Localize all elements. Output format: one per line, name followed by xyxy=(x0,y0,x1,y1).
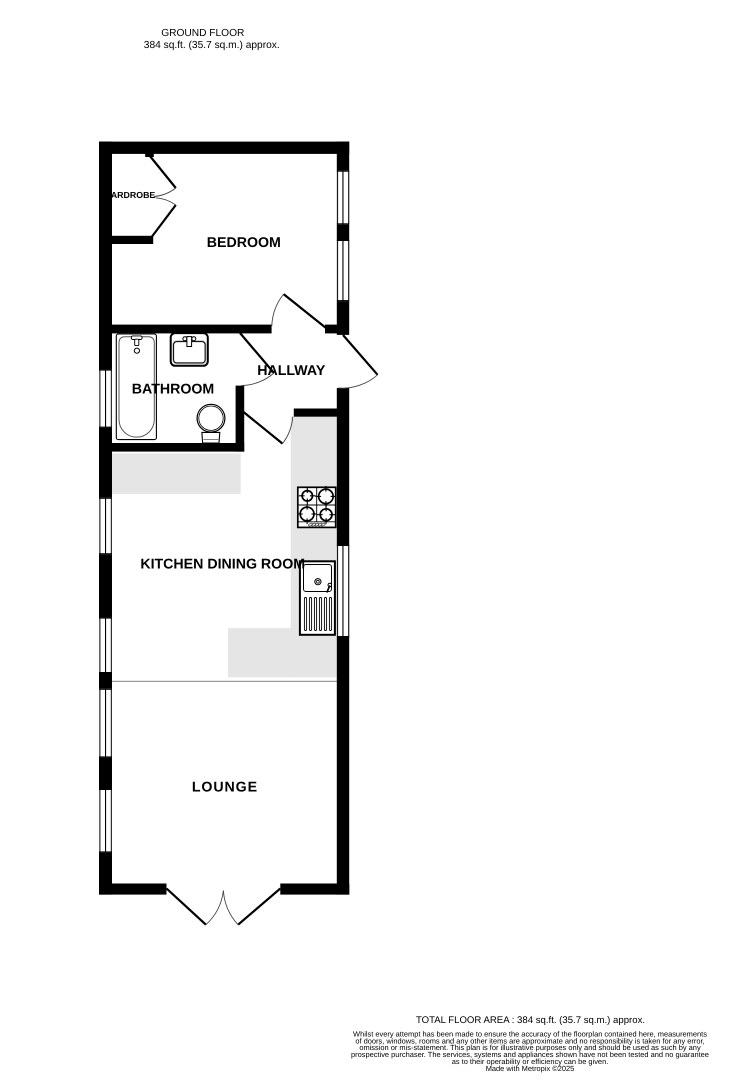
svg-text:LOUNGE: LOUNGE xyxy=(192,780,258,796)
svg-text:384 sq.ft. (35.7 sq.m.) approx: 384 sq.ft. (35.7 sq.m.) approx. xyxy=(144,40,280,51)
svg-text:BEDROOM: BEDROOM xyxy=(207,235,281,251)
svg-text:Made with Metropix ©2025: Made with Metropix ©2025 xyxy=(486,1064,575,1073)
svg-text:TOTAL FLOOR AREA : 384 sq.ft.: TOTAL FLOOR AREA : 384 sq.ft. (35.7 sq.m… xyxy=(416,1015,645,1026)
svg-text:GROUND FLOOR: GROUND FLOOR xyxy=(161,28,244,39)
svg-text:BATHROOM: BATHROOM xyxy=(132,382,215,398)
svg-text:HALLWAY: HALLWAY xyxy=(257,363,326,379)
svg-text:KITCHEN DINING ROOM: KITCHEN DINING ROOM xyxy=(140,557,305,573)
